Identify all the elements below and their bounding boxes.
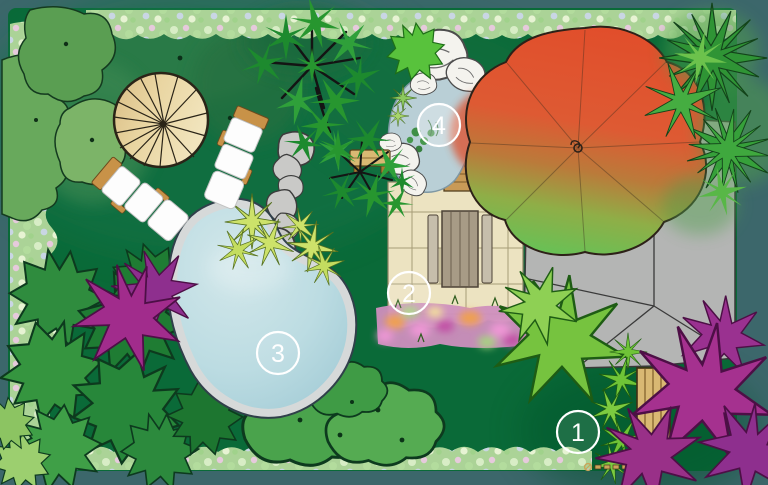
svg-text:4: 4	[432, 112, 446, 140]
marker-2[interactable]: 2	[388, 272, 430, 314]
svg-text:3: 3	[271, 340, 285, 368]
garden-plan-canvas: 1 2 3 4	[0, 0, 768, 485]
marker-3[interactable]: 3	[257, 332, 299, 374]
marker-1[interactable]: 1	[557, 411, 599, 453]
marker-4[interactable]: 4	[418, 104, 460, 146]
parasol	[114, 73, 208, 167]
svg-text:2: 2	[402, 280, 416, 308]
patio-dining-set	[428, 211, 492, 287]
svg-text:1: 1	[571, 419, 585, 447]
